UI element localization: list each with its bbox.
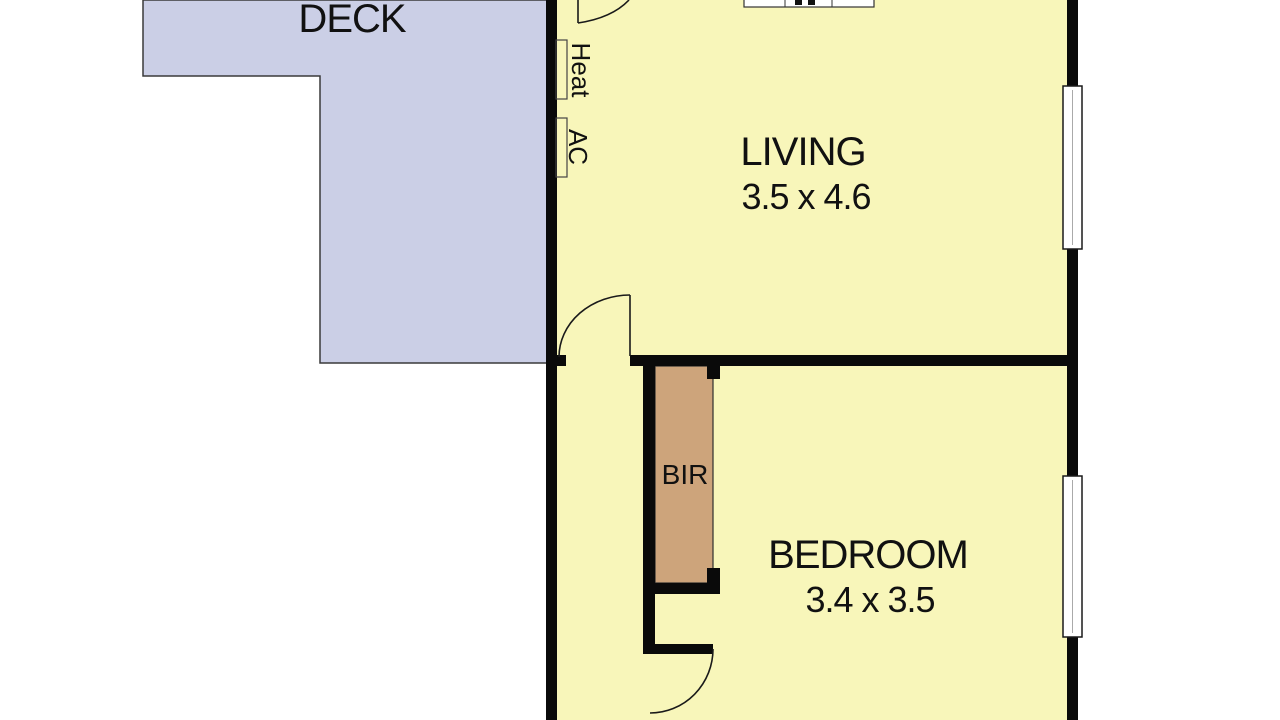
deck-area [143,0,548,363]
wall-under-bir [643,583,720,594]
wall-bir-stub-top [707,366,720,379]
wall-hallway-bottom-stub [643,644,713,654]
floorplan: DECK LIVING 3.5 x 4.6 BEDROOM 3.4 x 3.5 … [0,0,1280,720]
floorplan-drawing [0,0,1280,720]
sink-icon [744,0,874,7]
room-label-living: LIVING [740,132,865,172]
ac-label: AC [565,129,591,165]
room-dimensions-living: 3.5 x 4.6 [741,179,870,215]
window-bedroom [1063,476,1082,637]
window-living [1063,86,1082,249]
wall-right-lower [1067,636,1078,720]
wall-living-bedroom-divider [630,355,1078,366]
wall-right-upper [1067,0,1078,87]
wall-bir-stub-bottom [707,568,720,583]
heater-label: Heat [568,43,594,98]
room-dimensions-bedroom: 3.4 x 3.5 [805,582,934,618]
wall-divider-left-stub [546,355,566,366]
robe-label-bir: BIR [662,461,709,489]
wall-hallway [643,355,655,654]
room-label-deck: DECK [298,0,405,39]
room-label-bedroom: BEDROOM [768,535,968,575]
